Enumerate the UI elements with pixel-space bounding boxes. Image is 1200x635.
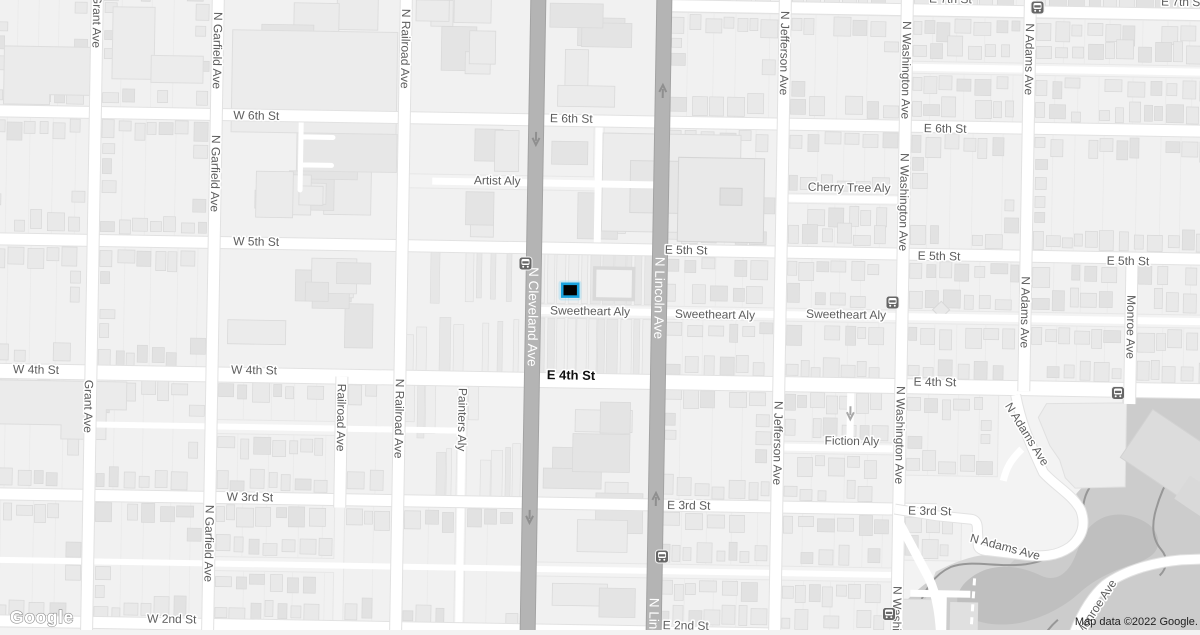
svg-text:N Jefferson Ave: N Jefferson Ave — [770, 401, 785, 486]
svg-text:W 3rd St: W 3rd St — [226, 490, 274, 505]
svg-text:E 3rd St: E 3rd St — [908, 504, 952, 519]
svg-text:Grant Ave: Grant Ave — [81, 380, 96, 434]
svg-text:E 6th St: E 6th St — [550, 111, 594, 126]
svg-text:E 7th St: E 7th St — [1161, 0, 1200, 9]
svg-text:N Garfield Ave: N Garfield Ave — [210, 12, 225, 90]
svg-text:N Cleveland Ave: N Cleveland Ave — [525, 267, 542, 367]
svg-text:Monroe Ave: Monroe Ave — [1123, 295, 1138, 359]
svg-text:Painters Aly: Painters Aly — [455, 388, 470, 452]
svg-text:E 4th St: E 4th St — [913, 375, 957, 390]
svg-text:Google: Google — [10, 607, 74, 627]
svg-text:W 5th St: W 5th St — [233, 234, 280, 249]
svg-text:E 5th St: E 5th St — [918, 249, 962, 264]
svg-text:N Railroad Ave: N Railroad Ave — [398, 9, 413, 89]
svg-text:N Railroad Ave: N Railroad Ave — [392, 379, 407, 459]
svg-text:N Washington Ave: N Washington Ave — [898, 21, 914, 120]
svg-text:N Lincoln Ave: N Lincoln Ave — [651, 257, 667, 340]
svg-text:Fiction Aly: Fiction Aly — [824, 434, 879, 449]
svg-text:E 3rd St: E 3rd St — [667, 498, 711, 513]
svg-text:Map data ©2022 Google.: Map data ©2022 Google. — [1075, 616, 1198, 628]
svg-text:W 2nd St: W 2nd St — [147, 612, 197, 627]
svg-text:Grant Ave: Grant Ave — [89, 0, 104, 48]
svg-text:E 7th St: E 7th St — [929, 0, 973, 6]
svg-text:Cherry Tree Aly: Cherry Tree Aly — [808, 180, 891, 195]
svg-text:N Jefferson Ave: N Jefferson Ave — [777, 11, 792, 96]
svg-text:N Garfield Ave: N Garfield Ave — [201, 505, 216, 583]
svg-text:E 6th St: E 6th St — [924, 121, 968, 136]
svg-text:E 4th St: E 4th St — [547, 367, 596, 383]
svg-text:N Adams Ave: N Adams Ave — [1017, 276, 1032, 348]
svg-text:N Washington Ave: N Washington Ave — [892, 386, 908, 485]
svg-text:N Washington Ave: N Washington Ave — [896, 153, 912, 252]
svg-text:W 4th St: W 4th St — [231, 363, 278, 378]
svg-text:W 6th St: W 6th St — [233, 108, 280, 123]
svg-text:Sweetheart Aly: Sweetheart Aly — [806, 307, 886, 322]
svg-text:W 4th St: W 4th St — [13, 362, 60, 377]
svg-text:N Adams Ave: N Adams Ave — [1022, 23, 1037, 95]
svg-text:Railroad Ave: Railroad Ave — [334, 384, 349, 452]
svg-text:E 2nd St: E 2nd St — [663, 618, 710, 630]
svg-text:Artist Aly: Artist Aly — [474, 173, 521, 188]
svg-text:N Lincoln Ave: N Lincoln Ave — [645, 598, 661, 630]
svg-text:Sweetheart Aly: Sweetheart Aly — [675, 307, 755, 322]
svg-text:E 5th St: E 5th St — [1107, 254, 1151, 269]
svg-text:N Garfield Ave: N Garfield Ave — [208, 135, 223, 213]
svg-text:Sweetheart Aly: Sweetheart Aly — [550, 303, 630, 318]
svg-text:E 5th St: E 5th St — [665, 243, 709, 258]
